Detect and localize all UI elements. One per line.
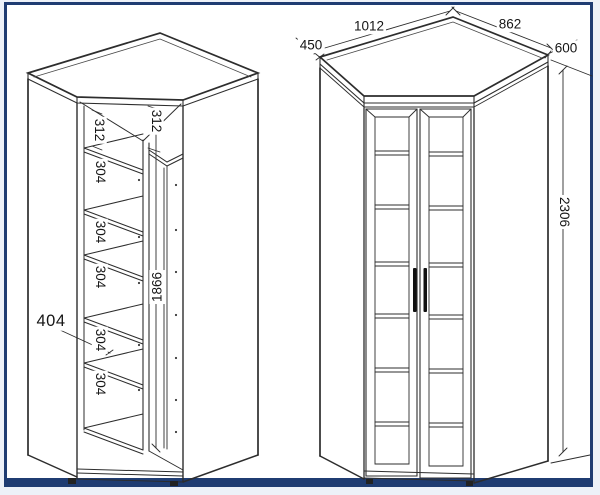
dim-862: 862 (497, 16, 524, 32)
dim-304-1: 304 (92, 159, 108, 186)
dim-304-3: 304 (92, 264, 108, 291)
drawing-stage: 312 312 304 304 304 304 304 404 1866 101… (0, 0, 600, 495)
dim-312-left: 312 (91, 117, 107, 144)
dim-1866: 1866 (149, 270, 165, 304)
dim-304-2: 304 (92, 219, 108, 246)
dim-1012: 1012 (352, 18, 386, 34)
dim-450: 450 (298, 37, 325, 53)
dim-404: 404 (34, 312, 67, 331)
dim-304-4: 304 (92, 327, 108, 354)
wardrobe-line-art (0, 0, 600, 495)
dim-2306: 2306 (556, 195, 572, 229)
dim-312-right: 312 (148, 108, 164, 135)
dim-600: 600 (553, 40, 580, 56)
dim-304-5: 304 (92, 371, 108, 398)
